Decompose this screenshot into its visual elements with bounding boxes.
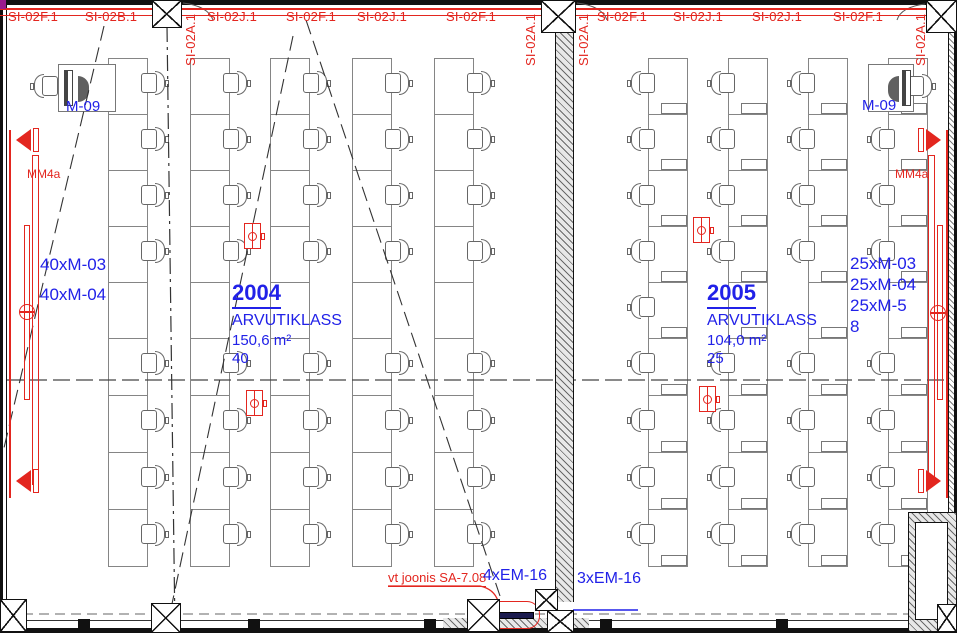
room-name: ARVUTIKLASS <box>232 312 342 330</box>
student-chair-icon <box>467 239 493 264</box>
wall-pier <box>78 619 90 629</box>
student-chair-icon <box>141 408 167 433</box>
pc-unit <box>821 384 847 395</box>
pc-unit <box>661 441 687 452</box>
room-area: 150,6 m² <box>232 333 342 350</box>
student-chair-icon <box>629 408 655 433</box>
projector-icon <box>16 127 40 155</box>
pc-unit <box>661 103 687 114</box>
wall-outlet-icon <box>930 305 946 321</box>
wall-pier <box>776 619 788 629</box>
student-chair-icon <box>709 127 735 152</box>
student-chair-icon <box>141 351 167 376</box>
student-chair-icon <box>141 239 167 264</box>
student-chair-icon <box>789 522 815 547</box>
student-chair-icon <box>467 522 493 547</box>
column-icon <box>535 589 558 611</box>
grid-axis-label: SI-02F.1 <box>8 9 58 24</box>
grid-axis-label: SI-02A.1 <box>577 8 590 66</box>
desk-cell <box>352 282 392 339</box>
room-number: 2004 <box>232 281 281 309</box>
floor-outlet-icon <box>699 386 716 412</box>
grid-axis-label: SI-02B.1 <box>85 9 137 24</box>
pc-unit <box>901 441 927 452</box>
grid-axis-label: SI-02F.1 <box>446 9 496 24</box>
pc-unit <box>821 327 847 338</box>
em16-right-label: 3xEM-16 <box>577 570 641 588</box>
grid-axis-label: SI-02J.1 <box>357 9 407 24</box>
student-chair-icon <box>789 408 815 433</box>
pc-unit <box>741 555 767 566</box>
room-2004-label: 2004 ARVUTIKLASS 150,6 m² 40 <box>232 281 342 368</box>
student-chair-icon <box>385 408 411 433</box>
pc-unit <box>661 384 687 395</box>
grid-axis-label: SI-02A.1 <box>914 8 927 66</box>
monitor-icon <box>902 70 911 106</box>
wall-outlet-icon <box>19 304 35 320</box>
column-icon <box>0 599 27 632</box>
student-chair-icon <box>303 183 329 208</box>
student-chair-icon <box>789 465 815 490</box>
corner-marker <box>0 0 6 9</box>
student-chair-icon <box>869 408 895 433</box>
floor-outlet-icon <box>244 223 261 249</box>
teacher-station-tag: M-09 <box>862 97 896 114</box>
student-chair-icon <box>869 127 895 152</box>
teacher-chair-icon <box>908 74 934 99</box>
column-icon <box>467 599 500 632</box>
pc-unit <box>901 215 927 226</box>
student-chair-icon <box>385 239 411 264</box>
grid-axis-label: SI-02F.1 <box>286 9 336 24</box>
equipment-label: 40xM-03 <box>40 250 106 280</box>
student-chair-icon <box>141 465 167 490</box>
projector-icon <box>917 468 941 496</box>
pc-unit <box>741 441 767 452</box>
student-chair-icon <box>629 71 655 96</box>
top-wall <box>0 0 957 5</box>
student-chair-icon <box>141 127 167 152</box>
student-chair-icon <box>141 522 167 547</box>
equipment-label: 25xM-04 <box>850 274 916 295</box>
student-chair-icon <box>141 183 167 208</box>
student-chair-icon <box>709 522 735 547</box>
projector-icon <box>917 127 941 155</box>
projector-icon <box>16 468 40 496</box>
room-number: 2005 <box>707 281 756 309</box>
student-chair-icon <box>709 239 735 264</box>
column-icon <box>541 0 576 33</box>
multimedia-tag-right: MM4a <box>895 167 928 181</box>
wall-pier <box>600 619 612 629</box>
wall-pier <box>424 619 436 629</box>
pc-unit <box>901 384 927 395</box>
student-chair-icon <box>869 351 895 376</box>
equipment-labels-room-2004: 40xM-0340xM-04 <box>40 250 106 310</box>
pc-unit <box>661 327 687 338</box>
student-chair-icon <box>223 465 249 490</box>
student-chair-icon <box>223 183 249 208</box>
pc-unit <box>741 215 767 226</box>
student-chair-icon <box>709 71 735 96</box>
column-icon <box>926 0 957 33</box>
pc-unit <box>901 498 927 509</box>
student-chair-icon <box>467 408 493 433</box>
pc-unit <box>741 159 767 170</box>
student-chair-icon <box>385 351 411 376</box>
student-chair-icon <box>467 465 493 490</box>
teacher-station-tag: M-09 <box>66 98 100 115</box>
grid-axis-label: SI-02J.1 <box>673 9 723 24</box>
column-icon <box>937 604 957 632</box>
student-chair-icon <box>629 465 655 490</box>
student-chair-icon <box>789 183 815 208</box>
room-capacity: 40 <box>232 351 342 368</box>
grid-axis-label: SI-02F.1 <box>597 9 647 24</box>
student-chair-icon <box>789 127 815 152</box>
student-chair-icon <box>385 127 411 152</box>
pc-unit <box>741 103 767 114</box>
pc-unit <box>821 159 847 170</box>
student-chair-icon <box>303 71 329 96</box>
student-chair-icon <box>467 351 493 376</box>
em16-left-label: 4xEM-16 <box>483 567 547 585</box>
floor-plan-canvas: M-09 M-09 SI-02F.1SI-02B.1SI-02A.1SI-02J… <box>0 0 957 633</box>
student-chair-icon <box>303 408 329 433</box>
floor-outlet-icon <box>246 390 263 416</box>
desk-cell <box>434 282 474 339</box>
multimedia-tag-left: MM4a <box>27 167 60 181</box>
grid-axis-label: SI-02J.1 <box>752 9 802 24</box>
equipment-label: 25xM-5 <box>850 295 916 316</box>
student-chair-icon <box>629 239 655 264</box>
pc-unit <box>821 441 847 452</box>
student-chair-icon <box>709 465 735 490</box>
detail-reference-note: vt joonis SA-7.08 <box>388 570 486 587</box>
student-chair-icon <box>629 127 655 152</box>
pc-unit <box>821 498 847 509</box>
pc-unit <box>741 498 767 509</box>
desk-cell <box>190 282 230 339</box>
pc-unit <box>661 215 687 226</box>
student-chair-icon <box>303 522 329 547</box>
column-icon <box>152 0 182 28</box>
projection-screen <box>32 155 39 485</box>
student-chair-icon <box>789 71 815 96</box>
screen-wall-line <box>946 130 948 498</box>
screen-wall-line <box>9 130 11 498</box>
column-icon <box>547 610 574 633</box>
pc-unit <box>821 103 847 114</box>
room-2005-label: 2005 ARVUTIKLASS 104,0 m² 25 <box>707 281 817 368</box>
left-wall <box>0 0 7 633</box>
equipment-label: 40xM-04 <box>40 280 106 310</box>
grid-axis-label: SI-02F.1 <box>833 9 883 24</box>
wall-pier <box>248 619 260 629</box>
room-name: ARVUTIKLASS <box>707 312 817 330</box>
student-chair-icon <box>629 351 655 376</box>
student-chair-icon <box>385 522 411 547</box>
desk-cell <box>108 282 148 339</box>
student-chair-icon <box>467 183 493 208</box>
equipment-label: 25xM-03 <box>850 253 916 274</box>
student-chair-icon <box>223 522 249 547</box>
pc-unit <box>661 555 687 566</box>
student-chair-icon <box>303 127 329 152</box>
center-partition-wall <box>555 18 574 602</box>
student-chair-icon <box>303 465 329 490</box>
pc-unit <box>661 271 687 282</box>
student-chair-icon <box>869 522 895 547</box>
pc-unit <box>821 555 847 566</box>
pc-unit <box>661 159 687 170</box>
student-chair-icon <box>869 465 895 490</box>
teacher-chair-icon <box>32 74 58 99</box>
pc-unit <box>821 271 847 282</box>
student-chair-icon <box>629 295 655 320</box>
grid-axis-label: SI-02A.1 <box>524 8 537 66</box>
student-chair-icon <box>869 183 895 208</box>
student-chair-icon <box>709 183 735 208</box>
floor-outlet-icon <box>693 217 710 243</box>
student-chair-icon <box>223 127 249 152</box>
equipment-label: 8 <box>850 316 916 337</box>
student-chair-icon <box>385 71 411 96</box>
student-chair-icon <box>303 239 329 264</box>
grid-axis-label: SI-02A.1 <box>184 8 197 66</box>
pc-unit <box>821 215 847 226</box>
student-chair-icon <box>629 183 655 208</box>
room-area: 104,0 m² <box>707 333 817 350</box>
student-chair-icon <box>223 71 249 96</box>
equipment-labels-room-2005: 25xM-0325xM-0425xM-58 <box>850 253 916 337</box>
student-chair-icon <box>385 183 411 208</box>
room-capacity: 25 <box>707 351 817 368</box>
column-icon <box>151 603 181 633</box>
pc-unit <box>661 498 687 509</box>
pc-unit <box>741 384 767 395</box>
student-chair-icon <box>789 239 815 264</box>
student-chair-icon <box>385 465 411 490</box>
student-chair-icon <box>467 71 493 96</box>
grid-axis-label: SI-02J.1 <box>207 9 257 24</box>
student-chair-icon <box>141 71 167 96</box>
student-chair-icon <box>629 522 655 547</box>
student-chair-icon <box>467 127 493 152</box>
